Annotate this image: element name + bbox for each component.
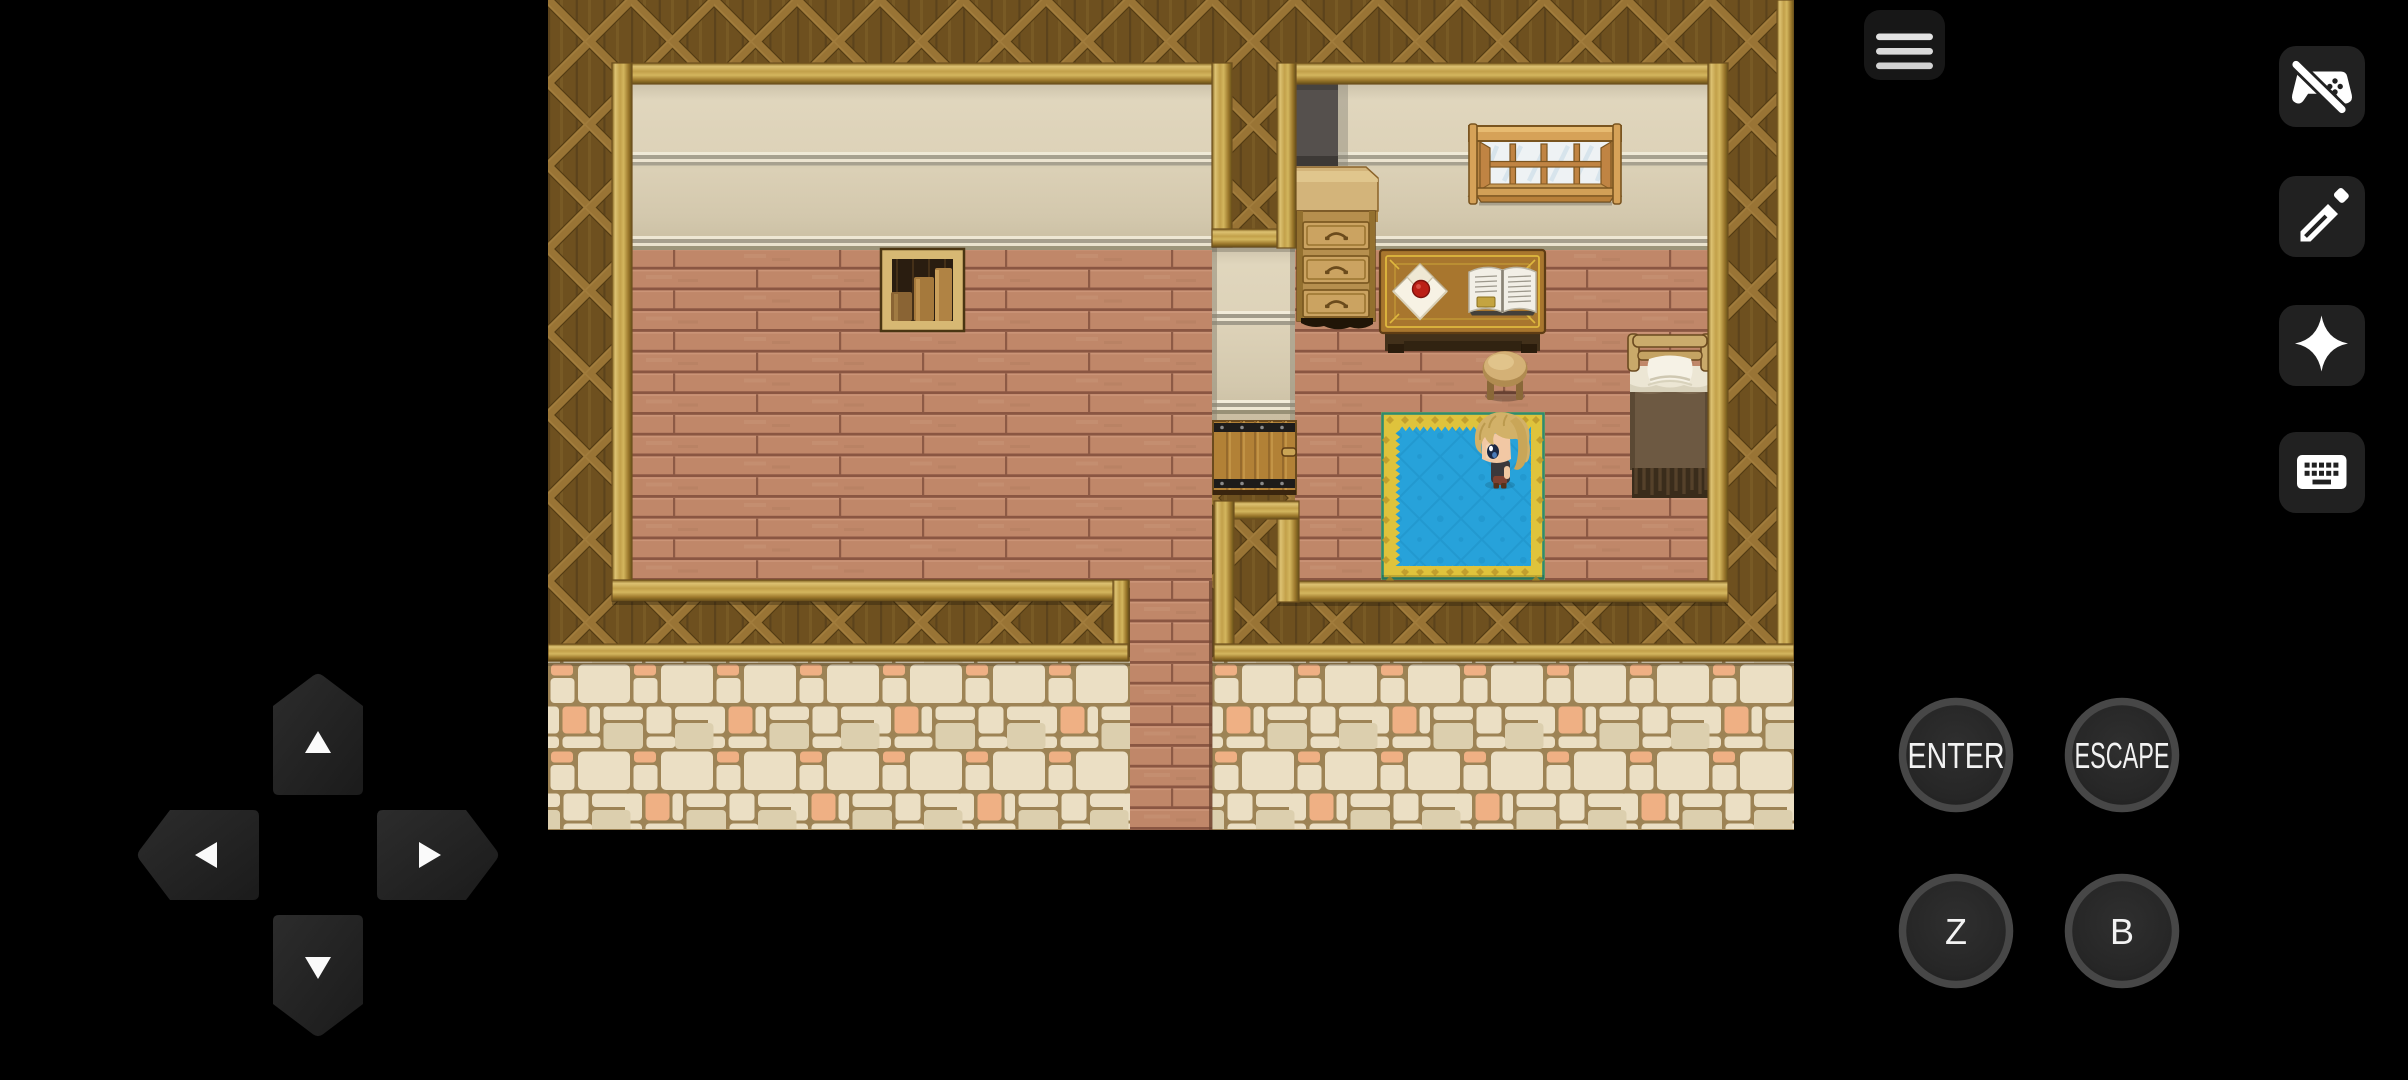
svg-text:ESCAPE: ESCAPE [2075,735,2170,776]
svg-text:Z: Z [1945,911,1967,952]
svg-text:ENTER: ENTER [1908,735,2005,776]
svg-text:B: B [2110,911,2134,952]
